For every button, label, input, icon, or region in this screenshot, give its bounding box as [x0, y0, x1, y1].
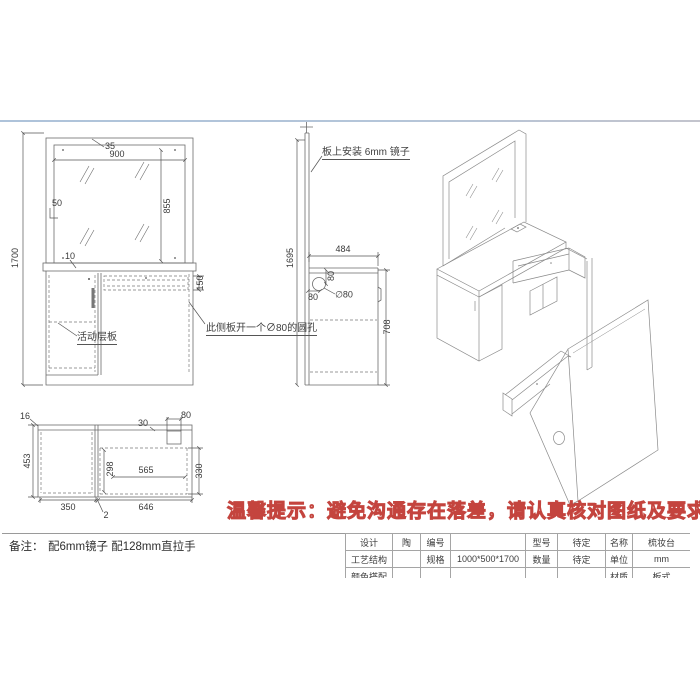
cell-unit-value: mm	[633, 551, 691, 568]
dim-hole-offset-side: 80	[308, 292, 318, 302]
cell-qty-value: 待定	[558, 551, 606, 568]
dim-panel-height: 1695	[285, 248, 295, 268]
cell-name-value: 梳妆台	[633, 534, 691, 551]
remark-label: 备注：	[9, 538, 44, 554]
dim-right-width: 646	[138, 502, 153, 512]
dim-mirror-width: 900	[109, 149, 124, 159]
cell-material-label: 材质	[606, 568, 633, 579]
dim-inner-depth: 298	[105, 461, 115, 476]
dim-divider-gap: 2	[103, 510, 108, 520]
isometric-panel-detail-view	[503, 300, 658, 505]
cell-qty-label: 数量	[526, 551, 558, 568]
cell-spec-value: 1000*500*1700	[451, 551, 526, 568]
dim-panel-thickness: 16	[20, 411, 30, 421]
cell-unit-label: 单位	[606, 551, 633, 568]
cell-number-value	[451, 534, 526, 551]
drawing-sheet: 1700 35 900 50 855 10 150 活动层板 此侧板开一个∅80…	[0, 0, 700, 700]
cell-color-value	[393, 568, 421, 579]
front-view-dimensions	[23, 133, 205, 385]
cell-number-label: 编号	[421, 534, 451, 551]
dim-drawer-height: 150	[195, 275, 205, 290]
title-block-table: 设计 陶 编号 型号 待定 名称 梳妆台 工艺结构 规格 1000*500*17…	[345, 533, 690, 578]
notes-top-border	[2, 533, 346, 534]
title-block-row: 颜色搭配 材质 板式	[346, 568, 691, 579]
label-side-panel-hole-note: 此侧板开一个∅80的圆孔	[206, 319, 317, 336]
front-view-linework	[43, 138, 196, 385]
cell-spec-label: 规格	[421, 551, 451, 568]
drawing-linework	[0, 0, 700, 700]
cell-design-value: 陶	[393, 534, 421, 551]
title-block: 设计 陶 编号 型号 待定 名称 梳妆台 工艺结构 规格 1000*500*17…	[345, 533, 690, 578]
dim-opening-width: 565	[138, 465, 153, 475]
remark-text: 配6mm镜子 配128mm直拉手	[48, 538, 196, 554]
dim-top-gap: 10	[65, 251, 75, 261]
cell-model-value: 待定	[558, 534, 606, 551]
cell-design-label: 设计	[346, 534, 393, 551]
dim-mirror-side-gap: 50	[52, 198, 62, 208]
cell-model-label: 型号	[526, 534, 558, 551]
cell-color-label: 颜色搭配	[346, 568, 393, 579]
cell-name-label: 名称	[606, 534, 633, 551]
dim-opening-depth: 330	[194, 463, 204, 478]
dim-depth: 484	[335, 244, 350, 254]
side-view-dimensions	[297, 140, 390, 385]
dim-hole-diameter: ∅80	[335, 290, 353, 301]
dim-cabinet-height: 708	[382, 319, 392, 334]
dim-hole-width: 80	[181, 410, 191, 420]
label-mirror-install-note: 板上安装 6mm 镜子	[322, 143, 410, 160]
dim-hole-offset-top: 80	[326, 271, 336, 281]
dim-overall-height: 1700	[10, 248, 20, 268]
title-block-row: 工艺结构 规格 1000*500*1700 数量 待定 单位 mm	[346, 551, 691, 568]
cell-structure-value	[393, 551, 421, 568]
cell-material-value: 板式	[633, 568, 691, 579]
dim-mirror-height: 855	[162, 198, 172, 213]
dim-plan-depth: 453	[22, 453, 32, 468]
warning-notice-text: 温馨提示：避免沟通存在落差，请认真核对图纸及要求！	[227, 496, 700, 523]
dim-back-offset: 30	[138, 418, 148, 428]
cell-structure-label: 工艺结构	[346, 551, 393, 568]
dim-left-width: 350	[60, 502, 75, 512]
label-movable-shelf: 活动层板	[77, 328, 117, 345]
isometric-assembled-view	[437, 130, 592, 370]
title-block-row: 设计 陶 编号 型号 待定 名称 梳妆台	[346, 534, 691, 551]
plan-view-linework	[38, 425, 192, 497]
